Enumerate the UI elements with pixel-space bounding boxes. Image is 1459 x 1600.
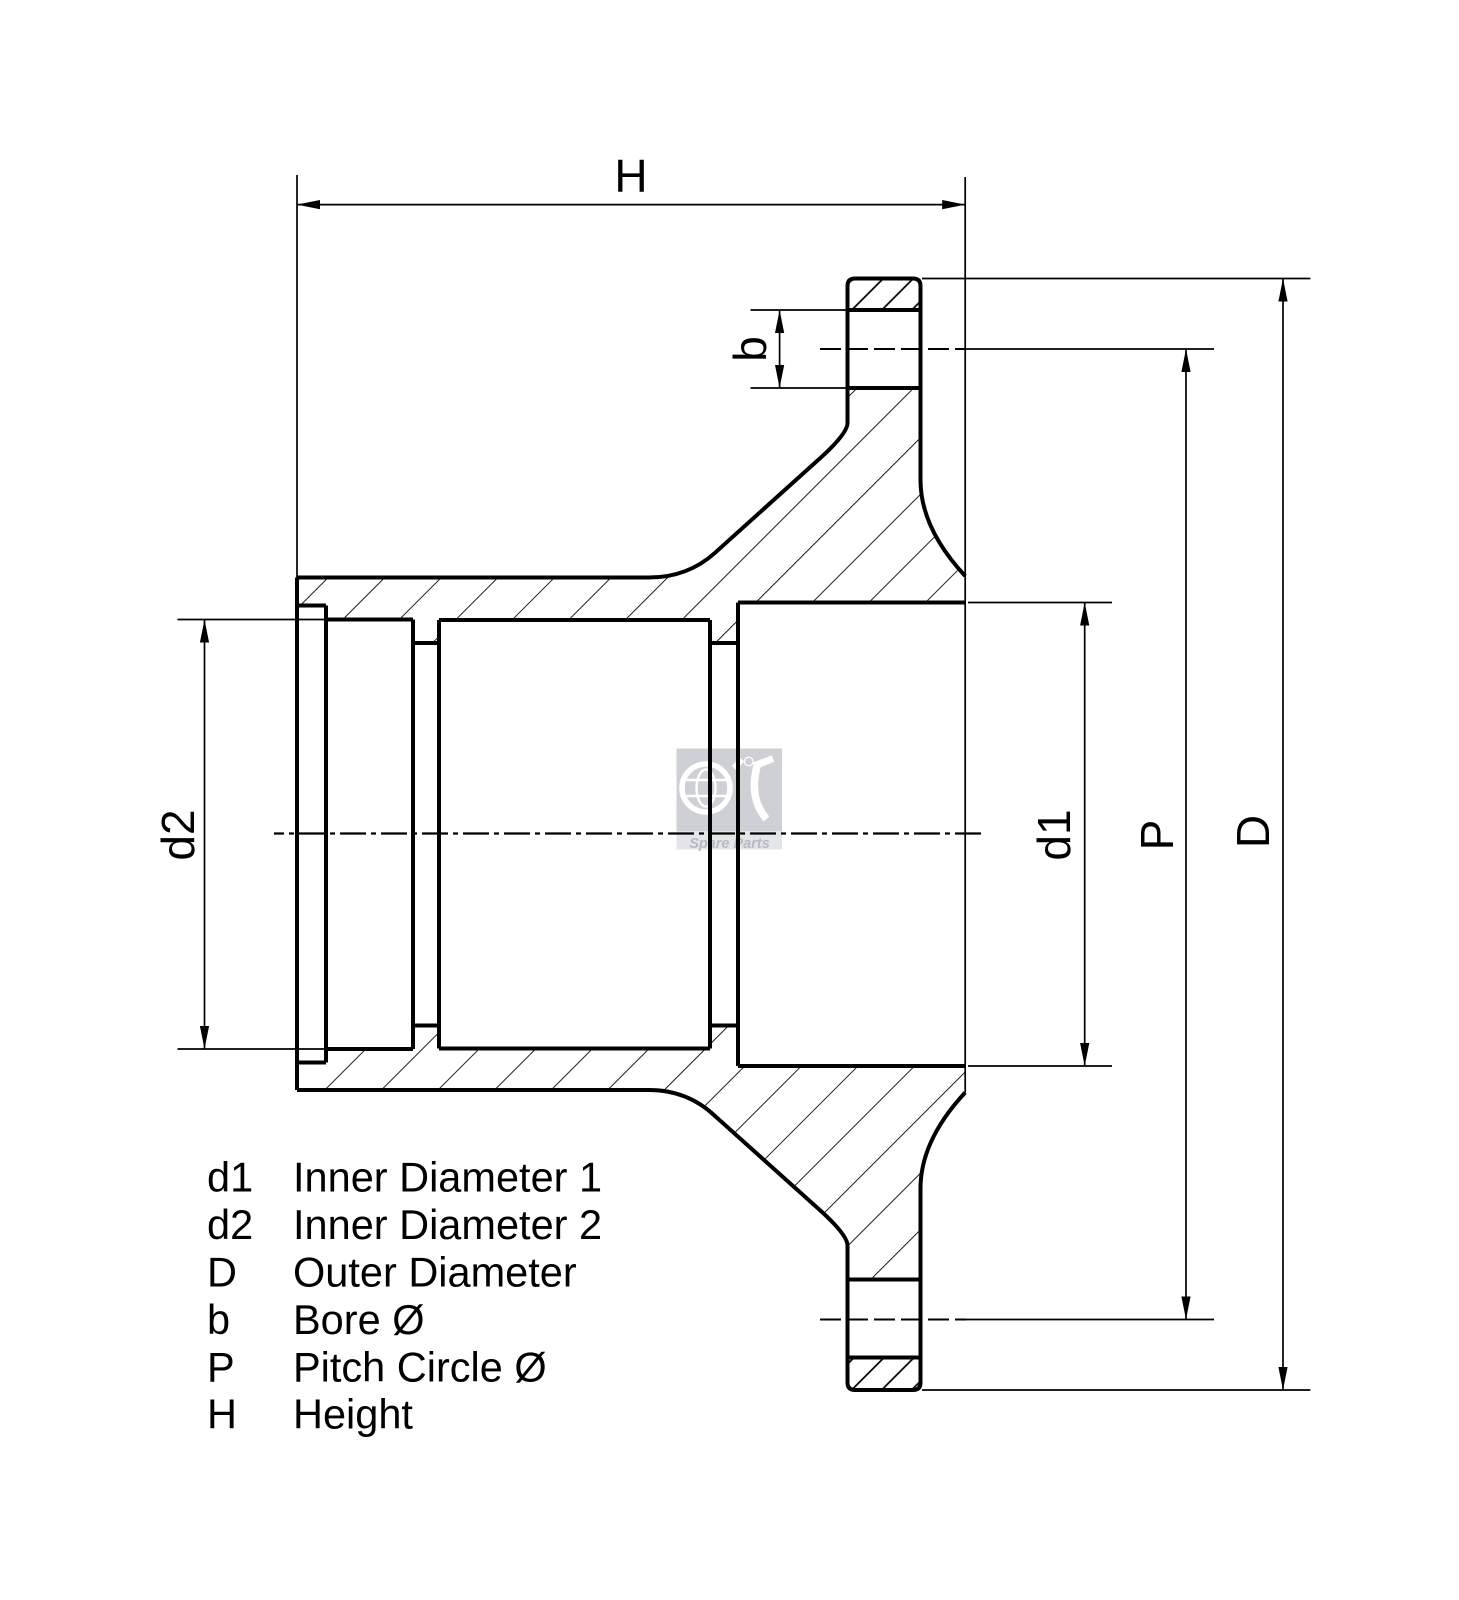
svg-text:Inner Diameter 1: Inner Diameter 1 bbox=[293, 1154, 602, 1201]
svg-text:P: P bbox=[207, 1344, 235, 1391]
svg-text:Inner Diameter 2: Inner Diameter 2 bbox=[293, 1201, 602, 1248]
svg-text:Bore Ø: Bore Ø bbox=[293, 1296, 424, 1343]
svg-text:H: H bbox=[614, 150, 647, 202]
svg-text:P: P bbox=[1131, 820, 1183, 851]
svg-text:b: b bbox=[207, 1296, 230, 1343]
svg-text:d1: d1 bbox=[207, 1154, 253, 1201]
svg-text:b: b bbox=[724, 336, 776, 362]
svg-text:d1: d1 bbox=[1028, 809, 1080, 860]
svg-text:Pitch Circle Ø: Pitch Circle Ø bbox=[293, 1344, 547, 1391]
svg-text:Outer Diameter: Outer Diameter bbox=[293, 1249, 577, 1296]
svg-text:d2: d2 bbox=[152, 809, 204, 860]
svg-text:Height: Height bbox=[293, 1391, 413, 1438]
svg-text:H: H bbox=[207, 1391, 237, 1438]
svg-text:D: D bbox=[1227, 815, 1279, 848]
svg-text:d2: d2 bbox=[207, 1201, 253, 1248]
svg-text:D: D bbox=[207, 1249, 237, 1296]
svg-text:Spare Parts: Spare Parts bbox=[689, 836, 770, 852]
